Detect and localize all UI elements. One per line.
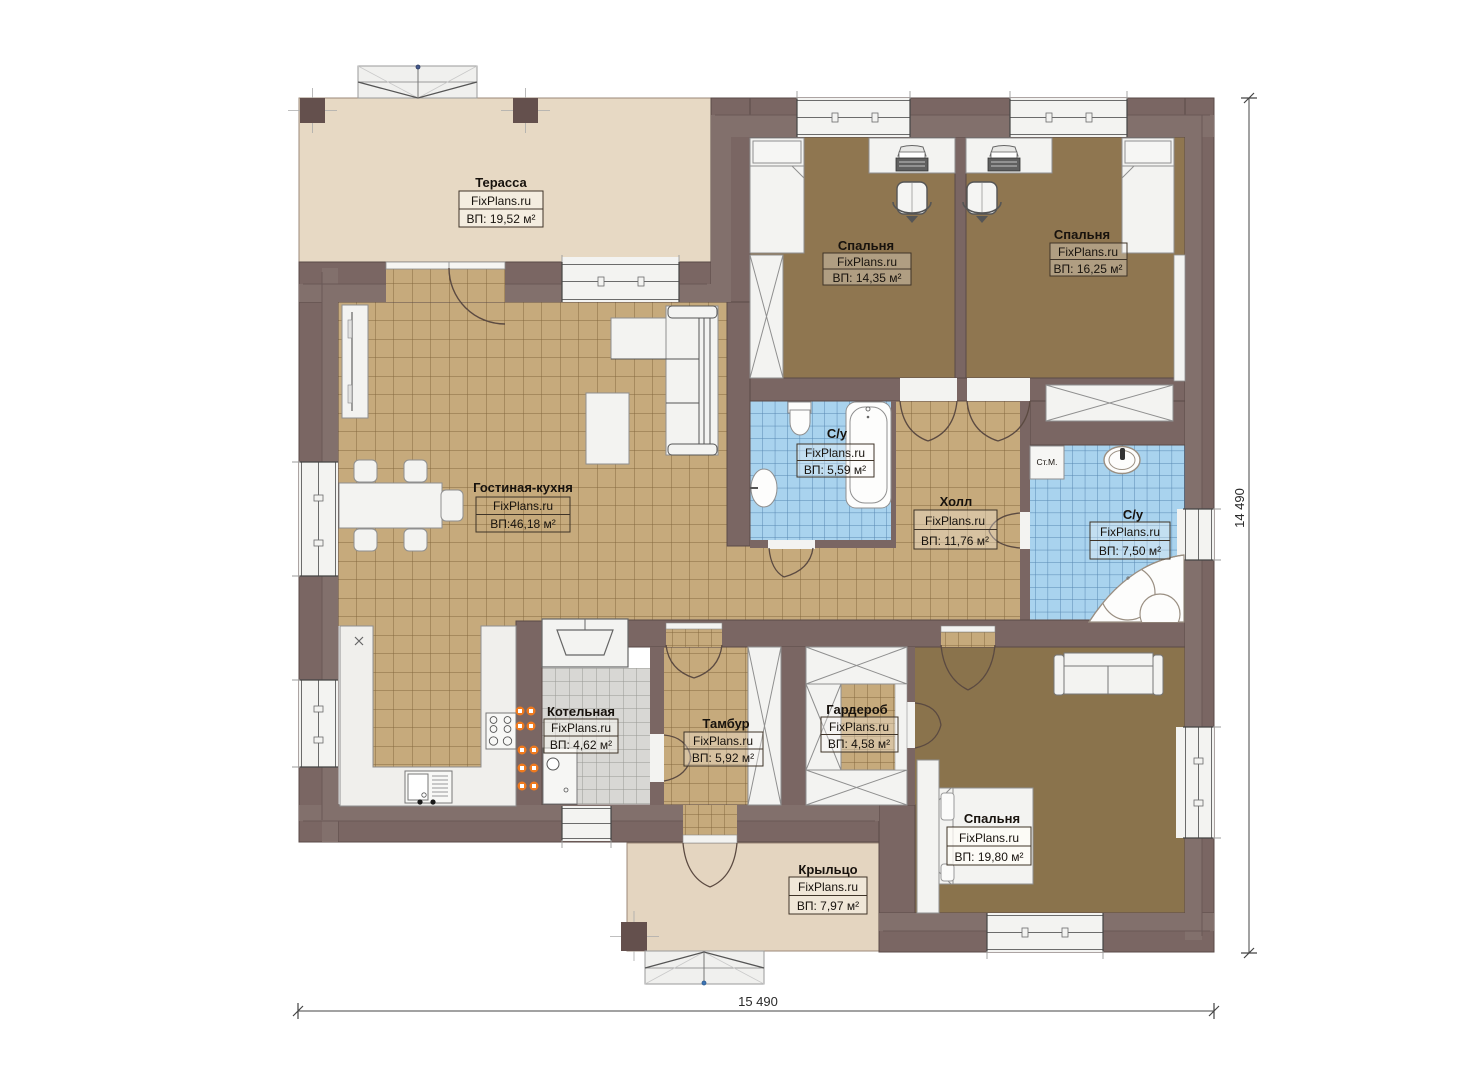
svg-text:Терасса: Терасса xyxy=(475,175,527,190)
svg-text:ВП: 16,25 м²: ВП: 16,25 м² xyxy=(1054,262,1123,276)
svg-text:FixPlans.ru: FixPlans.ru xyxy=(1100,525,1160,539)
svg-text:15 490: 15 490 xyxy=(738,994,778,1009)
svg-text:Спальня: Спальня xyxy=(838,238,894,253)
svg-text:ВП: 7,50 м²: ВП: 7,50 м² xyxy=(1099,544,1161,558)
svg-text:Спальня: Спальня xyxy=(1054,227,1110,242)
svg-text:FixPlans.ru: FixPlans.ru xyxy=(798,880,858,894)
svg-text:Котельная: Котельная xyxy=(547,704,615,719)
svg-text:ВП: 11,76 м²: ВП: 11,76 м² xyxy=(921,534,989,548)
svg-text:ВП: 14,35 м²: ВП: 14,35 м² xyxy=(833,271,902,285)
svg-text:FixPlans.ru: FixPlans.ru xyxy=(829,720,889,734)
svg-text:FixPlans.ru: FixPlans.ru xyxy=(1058,245,1118,259)
svg-text:Ст.М.: Ст.М. xyxy=(1037,457,1058,467)
svg-text:14 490: 14 490 xyxy=(1232,488,1247,528)
svg-text:FixPlans.ru: FixPlans.ru xyxy=(471,194,531,208)
svg-text:ВП: 19,80 м²: ВП: 19,80 м² xyxy=(955,850,1024,864)
svg-text:FixPlans.ru: FixPlans.ru xyxy=(959,831,1019,845)
svg-text:ВП: 5,59 м²: ВП: 5,59 м² xyxy=(804,463,866,477)
svg-text:ВП: 5,92 м²: ВП: 5,92 м² xyxy=(692,751,754,765)
svg-text:ВП:46,18 м²: ВП:46,18 м² xyxy=(490,517,556,531)
svg-text:С/у: С/у xyxy=(1123,507,1144,522)
svg-text:Крыльцо: Крыльцо xyxy=(798,862,857,877)
svg-text:FixPlans.ru: FixPlans.ru xyxy=(805,446,865,460)
svg-text:FixPlans.ru: FixPlans.ru xyxy=(837,255,897,269)
svg-text:Гостиная-кухня: Гостиная-кухня xyxy=(473,480,573,495)
svg-text:Тамбур: Тамбур xyxy=(702,716,749,731)
svg-text:FixPlans.ru: FixPlans.ru xyxy=(551,721,611,735)
svg-text:Гардероб: Гардероб xyxy=(826,702,887,717)
svg-text:Спальня: Спальня xyxy=(964,811,1020,826)
svg-text:ВП: 7,97 м²: ВП: 7,97 м² xyxy=(797,899,859,913)
svg-text:ВП: 4,58 м²: ВП: 4,58 м² xyxy=(828,737,890,751)
svg-text:FixPlans.ru: FixPlans.ru xyxy=(925,514,985,528)
svg-text:С/у: С/у xyxy=(827,426,848,441)
svg-text:FixPlans.ru: FixPlans.ru xyxy=(493,499,553,513)
svg-text:Холл: Холл xyxy=(940,494,973,509)
svg-text:ВП: 4,62 м²: ВП: 4,62 м² xyxy=(550,738,612,752)
svg-text:ВП: 19,52 м²: ВП: 19,52 м² xyxy=(467,212,536,226)
svg-text:FixPlans.ru: FixPlans.ru xyxy=(693,734,753,748)
